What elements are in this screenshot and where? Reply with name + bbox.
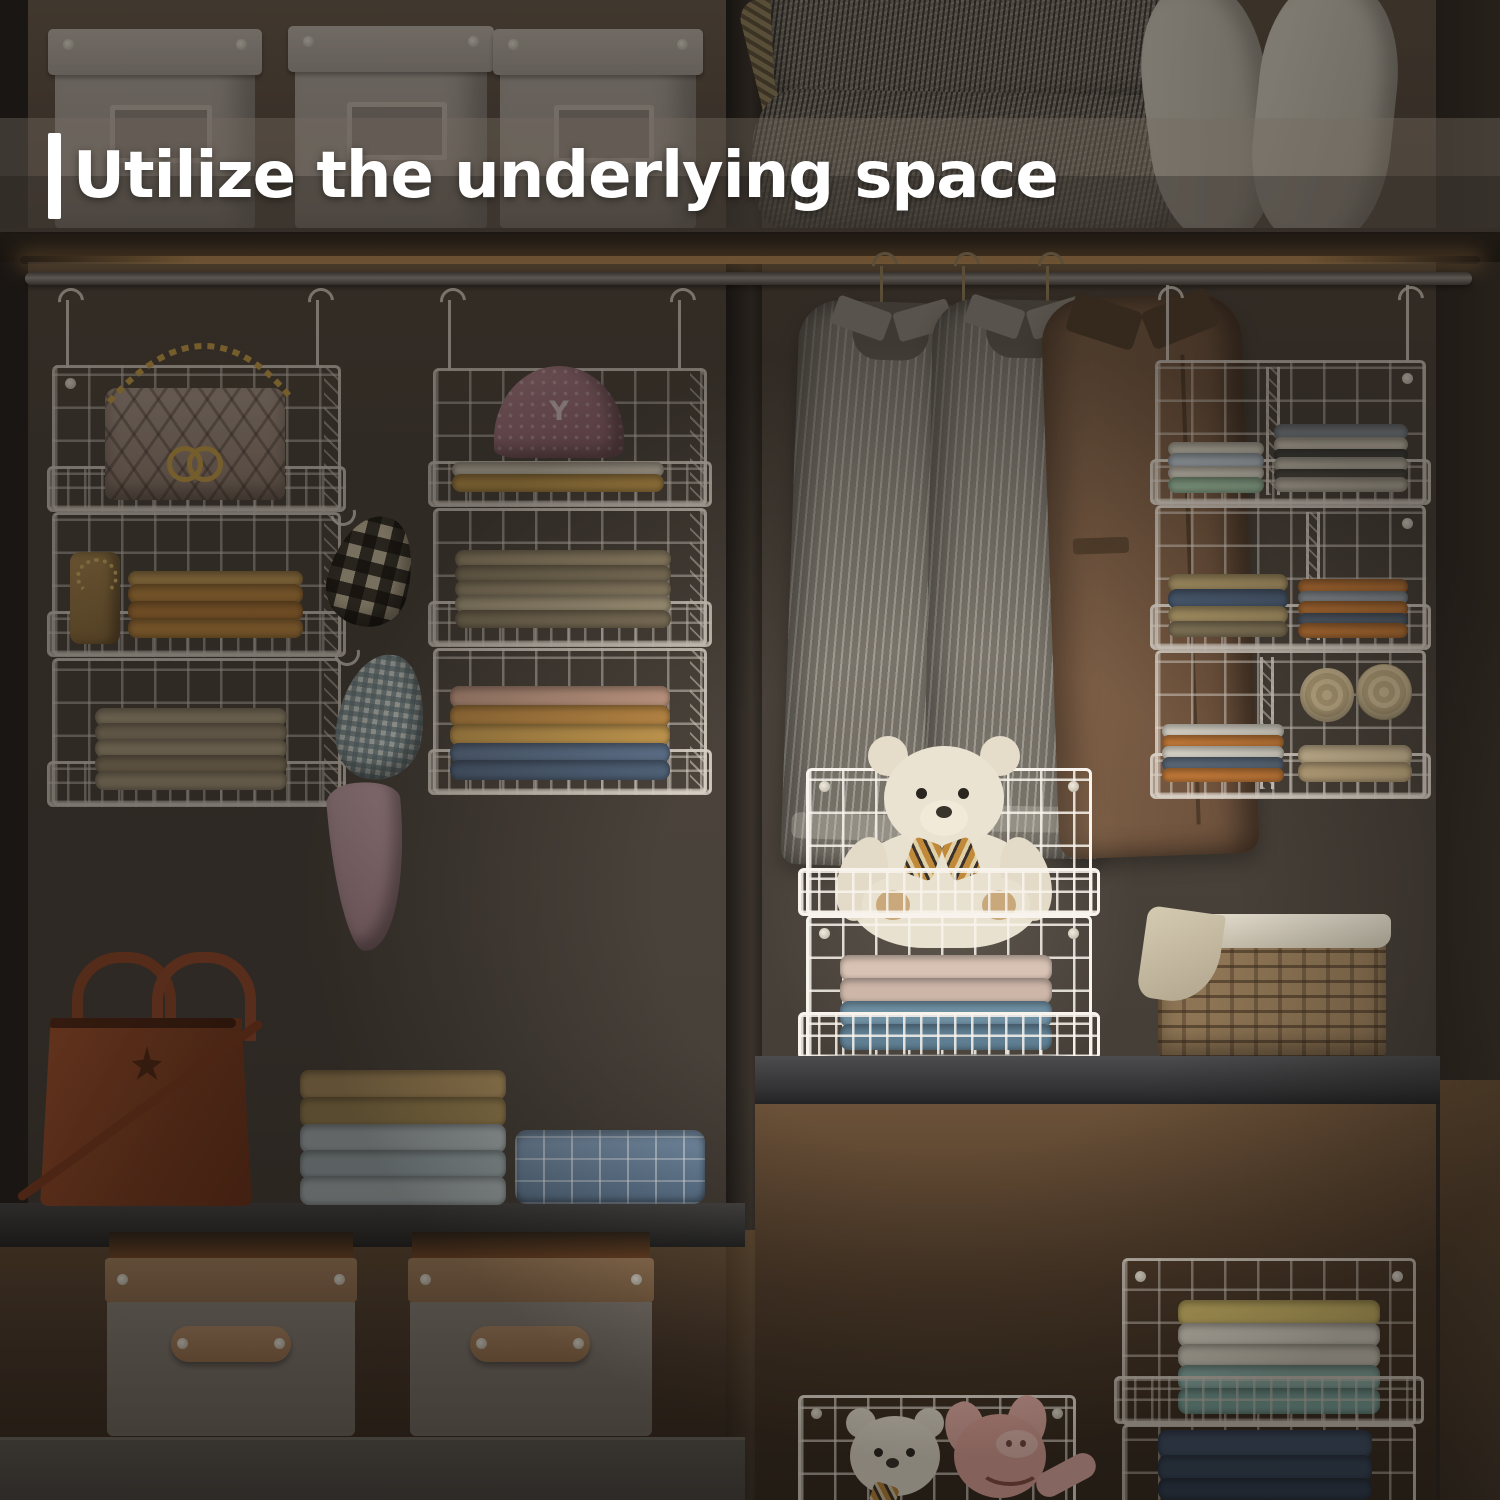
basket-screw	[1392, 1271, 1403, 1282]
folded-item	[450, 760, 670, 780]
stuffed-bear	[840, 1408, 960, 1500]
fabric-storage-box	[105, 1232, 357, 1436]
pig-smile	[978, 1448, 1042, 1486]
bear-nose	[886, 1458, 899, 1468]
wicker-basket	[1158, 922, 1386, 1058]
folded-item	[452, 474, 664, 492]
folded-item	[1162, 768, 1284, 782]
storage-box-lid	[493, 29, 703, 75]
trim-rivet	[631, 1274, 642, 1285]
lid-clip	[677, 39, 688, 50]
folded-jeans-stack	[1158, 1428, 1372, 1500]
teddy-eye	[958, 788, 969, 799]
hook-wire	[448, 300, 451, 370]
folded-item	[1168, 477, 1264, 493]
bear-eye	[906, 1448, 915, 1457]
bear-head	[850, 1416, 940, 1496]
folded-item	[300, 1070, 506, 1100]
fabric-storage-box	[408, 1232, 654, 1436]
lid-clip	[468, 36, 479, 47]
hook-wire	[316, 300, 319, 368]
storage-box-lid	[48, 29, 262, 75]
page-title: Utilize the underlying space	[48, 133, 1058, 219]
folded-clothes-stack	[1162, 692, 1284, 782]
basket-front-rail	[1114, 1376, 1424, 1424]
folded-item	[300, 1176, 506, 1205]
folded-clothes-stack	[455, 524, 671, 628]
folded-item	[1168, 621, 1288, 637]
folded-clothes-stack	[95, 672, 287, 790]
title-text: Utilize the underlying space	[73, 133, 1058, 219]
handle-rivet	[274, 1338, 285, 1349]
liner-drape	[1136, 905, 1226, 1007]
folded-item	[128, 618, 303, 638]
folded-clothes-stack	[450, 660, 670, 780]
rolled-towel	[1300, 668, 1354, 722]
clutch-chain-icon	[76, 558, 118, 596]
box-body	[410, 1302, 652, 1436]
folded-clothes-stack	[300, 1058, 506, 1205]
teddy-nose	[936, 806, 952, 818]
box-body	[107, 1302, 355, 1436]
tote-opening-shadow	[48, 1018, 236, 1028]
basket-screw	[1068, 781, 1079, 792]
lower-shelf-face	[0, 1437, 745, 1500]
basket-screw	[819, 781, 830, 792]
lid-clip	[236, 39, 247, 50]
folded-item	[1274, 477, 1408, 492]
title-accent-bar	[48, 133, 61, 219]
basket-screw	[811, 1408, 822, 1419]
basket-screw	[1068, 928, 1079, 939]
handle-rivet	[476, 1338, 487, 1349]
hook-wire	[66, 300, 69, 368]
folded-clothes-stack	[1168, 545, 1288, 637]
lid-clip	[63, 39, 74, 50]
handle-rivet	[177, 1338, 188, 1349]
cap-monogram: Y	[494, 396, 624, 427]
basket-screw	[65, 378, 76, 389]
box-handle	[171, 1326, 291, 1362]
handle-rivet	[573, 1338, 584, 1349]
storage-box-lid	[288, 26, 494, 72]
shelf-board	[755, 1056, 1440, 1104]
folded-item	[300, 1097, 506, 1127]
led-glow	[20, 256, 1480, 264]
basket-front-rail	[798, 868, 1100, 916]
folded-clothes-stack	[1274, 372, 1408, 492]
right-edge-glow	[1440, 1080, 1500, 1500]
trim-rivet	[117, 1274, 128, 1285]
trim-rivet	[420, 1274, 431, 1285]
pig-nostril	[1020, 1440, 1026, 1447]
folded-item	[1298, 762, 1412, 782]
folded-clothes-stack	[128, 524, 303, 638]
jacket-pocket	[1073, 537, 1130, 555]
gold-chain-strap	[95, 318, 305, 423]
box-interior	[412, 1232, 650, 1260]
product-photo: Y	[0, 0, 1500, 1500]
folded-clothes-stack	[1168, 398, 1264, 493]
trim-rivet	[334, 1274, 345, 1285]
basket-front-rail	[798, 1012, 1100, 1060]
folded-plaid-shirt	[515, 1130, 705, 1204]
box-leather-trim	[105, 1258, 357, 1302]
basket-screw	[819, 928, 830, 939]
stuffed-pig	[948, 1400, 1078, 1500]
gold-clutch	[70, 552, 120, 644]
folded-item	[1158, 1430, 1372, 1458]
folded-clothes-stack	[452, 452, 664, 492]
lid-clip	[508, 39, 519, 50]
box-handle	[470, 1326, 590, 1362]
basket-screw	[1135, 1271, 1146, 1282]
jacket-collar-flap	[1065, 292, 1144, 352]
hook-wire	[678, 300, 681, 370]
lid-clip	[303, 36, 314, 47]
folded-item	[95, 771, 287, 790]
folded-item	[455, 610, 671, 628]
folded-item	[1158, 1478, 1372, 1500]
basket-screw	[1402, 518, 1413, 529]
gold-cc-logo-icon	[187, 446, 223, 482]
folded-clothes-stack	[1298, 724, 1412, 782]
hanging-rod	[25, 272, 1472, 285]
box-interior	[109, 1232, 353, 1260]
folded-item	[300, 1124, 506, 1153]
folded-clothes-stack	[1298, 558, 1408, 638]
rolled-towel	[1356, 664, 1412, 720]
folded-item	[300, 1150, 506, 1179]
bear-eye	[874, 1448, 883, 1457]
box-leather-trim	[408, 1258, 654, 1302]
pig-nostril	[1006, 1440, 1012, 1447]
tote-emboss	[132, 1046, 162, 1080]
teddy-eye	[916, 788, 927, 799]
folded-item	[1298, 623, 1408, 638]
